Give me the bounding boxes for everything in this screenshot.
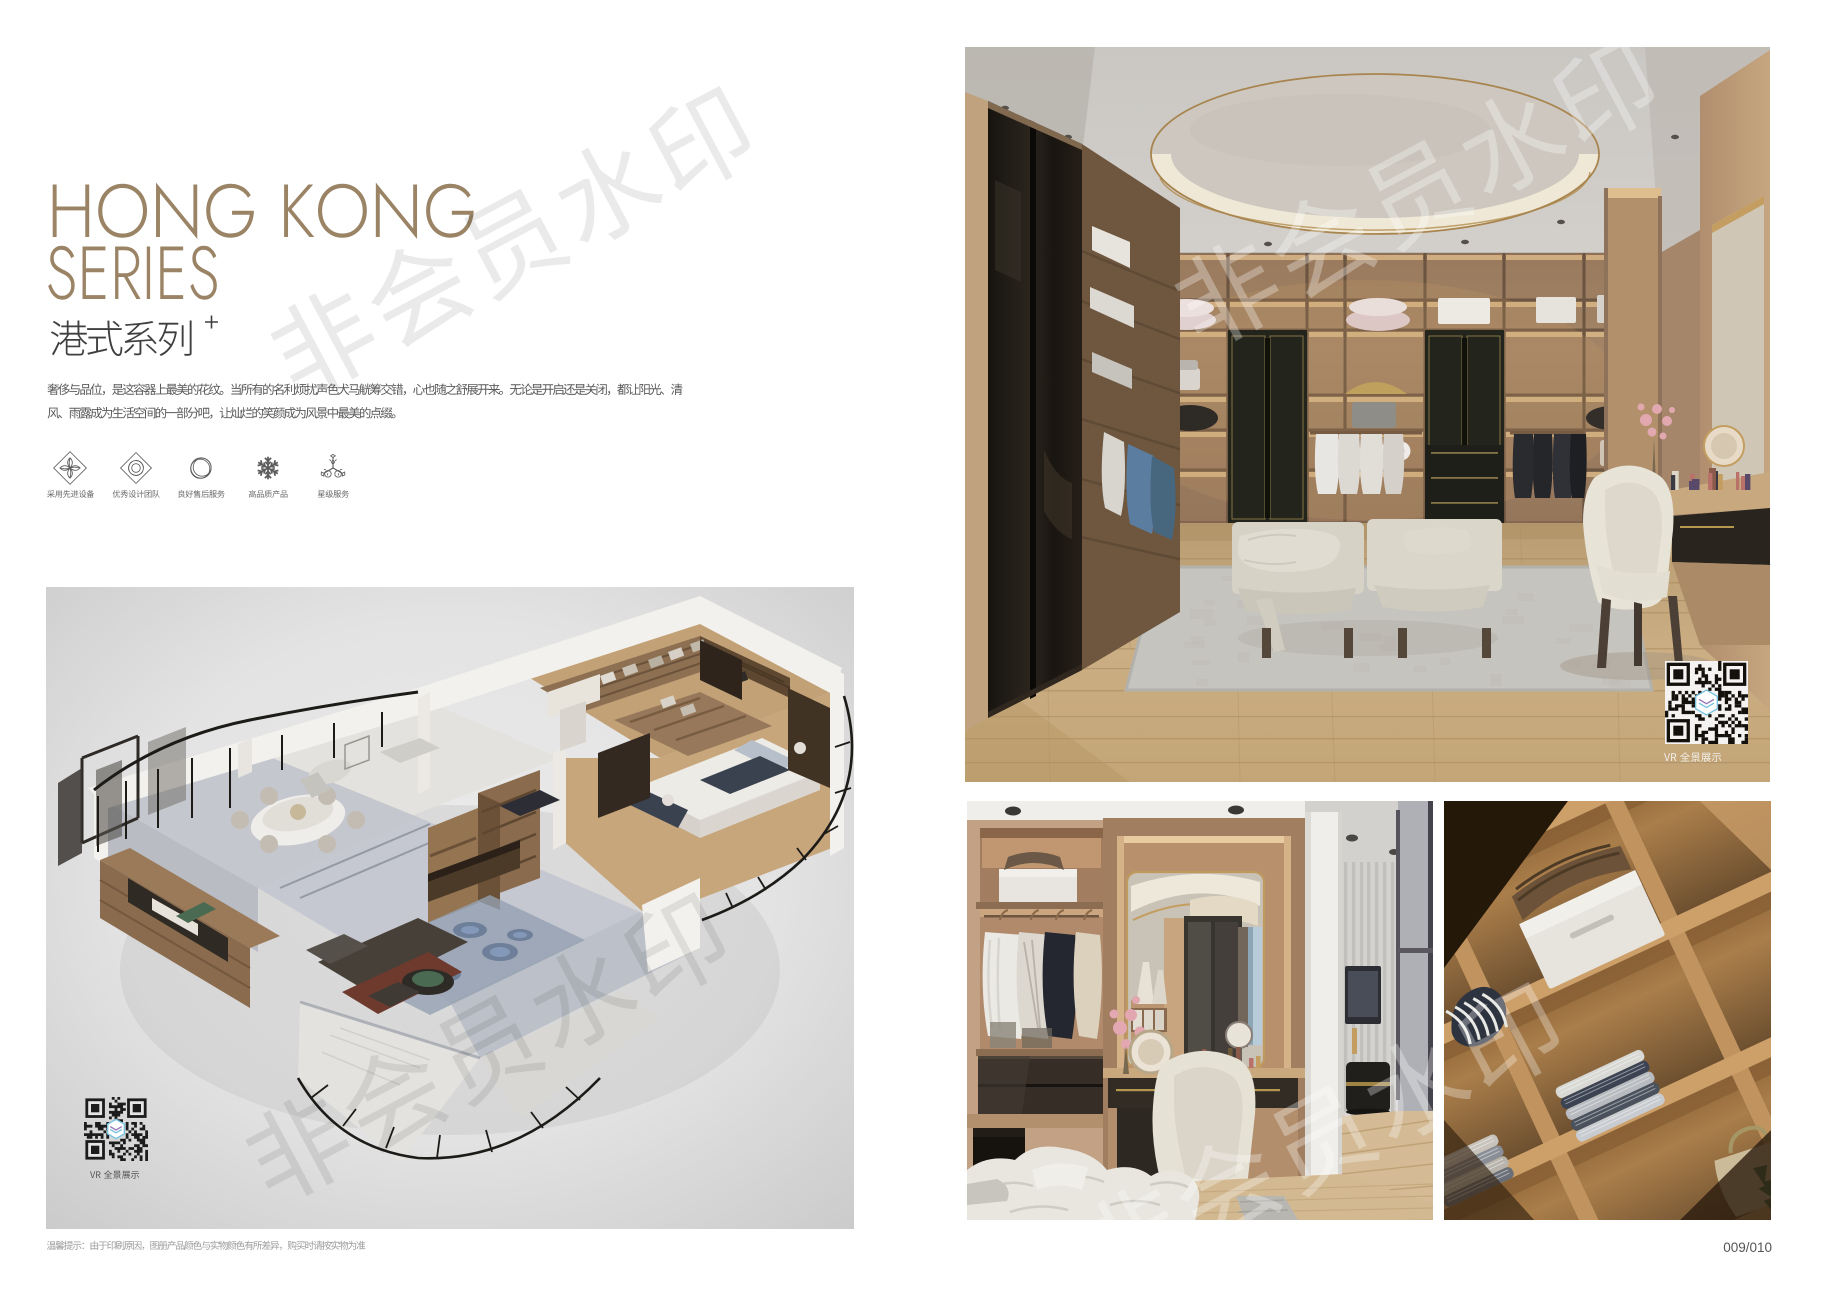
svg-text:009/010: 009/010 [1723,1240,1772,1255]
